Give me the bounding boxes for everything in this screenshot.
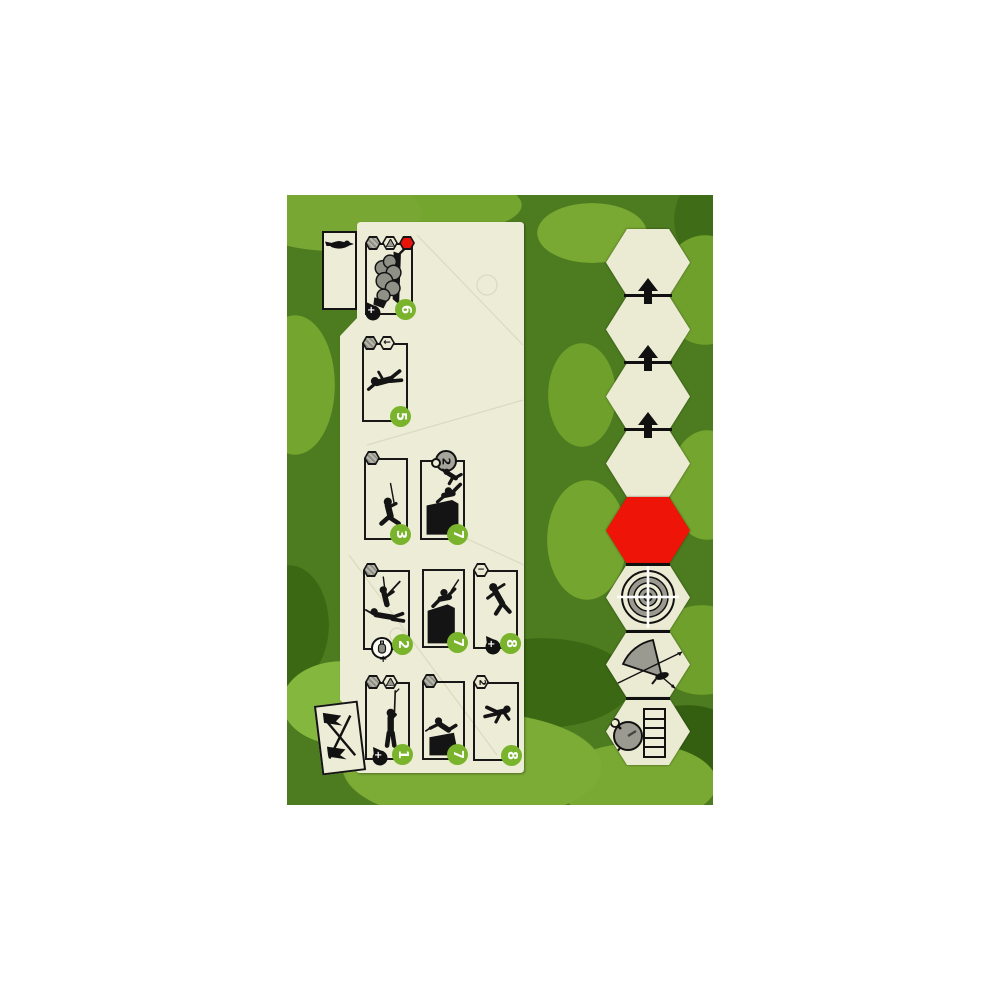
hex-edge-line	[626, 630, 670, 633]
target-crosshair-icon	[616, 565, 680, 629]
game-board-scene: + 6 ← 5	[287, 195, 713, 805]
bird-tab[interactable]	[322, 231, 357, 310]
value-chip: 7	[447, 524, 468, 545]
value-chip: 3	[390, 524, 411, 545]
value-chip: 5	[390, 406, 411, 427]
action-card-climb-wall[interactable]: 7	[422, 569, 465, 648]
action-card-vault-low-wall[interactable]: 7	[422, 681, 465, 760]
track-cell[interactable]	[645, 710, 664, 720]
plus-marker-icon: +	[370, 745, 389, 767]
flags-tab[interactable]	[314, 701, 366, 776]
up-arrow-icon	[636, 277, 660, 305]
plus-marker-icon: +	[363, 300, 382, 322]
value-chip: 2	[392, 634, 413, 655]
action-card-smoke[interactable]: + 6	[365, 243, 413, 315]
track-hex-stopwatch[interactable]	[606, 698, 690, 765]
action-card-assault-fire[interactable]: + 2	[363, 570, 410, 650]
track-hex-target[interactable]	[606, 564, 690, 631]
crow-icon	[324, 233, 355, 273]
action-card-climb-wall-timed[interactable]: 2 7	[420, 460, 465, 540]
value-chip: 7	[447, 744, 468, 765]
action-card-crawl[interactable]: ← 5	[362, 343, 408, 422]
action-card-kneel[interactable]: 3	[364, 458, 408, 540]
time-track	[643, 708, 666, 758]
up-arrow-icon	[636, 411, 660, 439]
track-cell[interactable]	[645, 748, 664, 756]
value-chip: 8	[500, 633, 521, 654]
track-hex-red-alert[interactable]	[606, 497, 690, 564]
up-arrow-icon	[636, 344, 660, 372]
track-hex-fire-arc[interactable]	[606, 631, 690, 698]
value-chip: 1	[392, 744, 413, 765]
action-card-hit-the-dirt[interactable]: − + 8	[473, 570, 518, 649]
crossed-flags-icon	[316, 703, 364, 771]
grenade-circle-icon: +	[371, 637, 393, 659]
track-hex-blank[interactable]	[606, 430, 690, 497]
fire-arc-gun-icon	[606, 631, 690, 698]
value-chip: 7	[447, 632, 468, 653]
track-cell[interactable]	[645, 729, 664, 739]
action-card-stand-fire[interactable]: + 1	[365, 682, 410, 760]
action-card-dash[interactable]: 2 8	[473, 682, 519, 761]
hex-edge-line	[626, 563, 670, 566]
value-chip: 6	[395, 299, 416, 320]
track-cell[interactable]	[645, 739, 664, 749]
hex-track	[606, 229, 690, 765]
track-cell[interactable]	[645, 720, 664, 730]
value-chip: 8	[501, 745, 522, 766]
hex-edge-line	[626, 697, 670, 700]
